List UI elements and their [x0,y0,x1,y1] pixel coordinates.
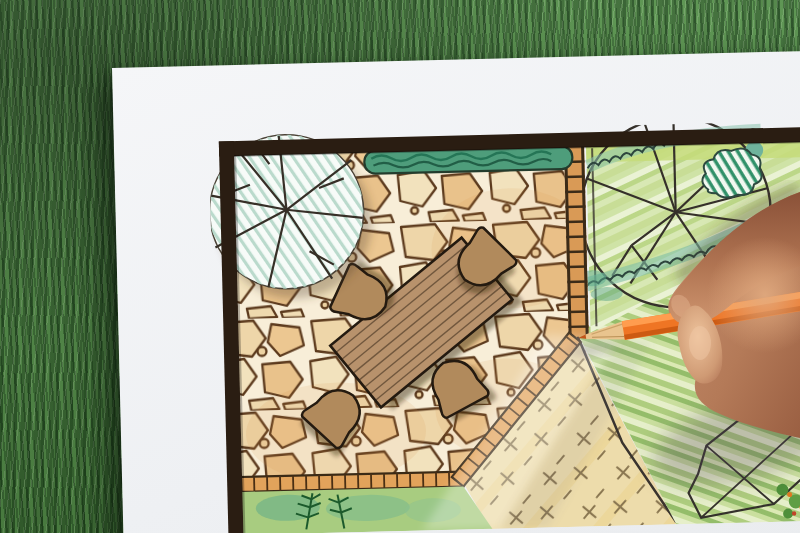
paper-sheet-wrap [112,49,800,533]
photo-scene [0,0,800,533]
garden-plan-drawing [209,121,800,533]
